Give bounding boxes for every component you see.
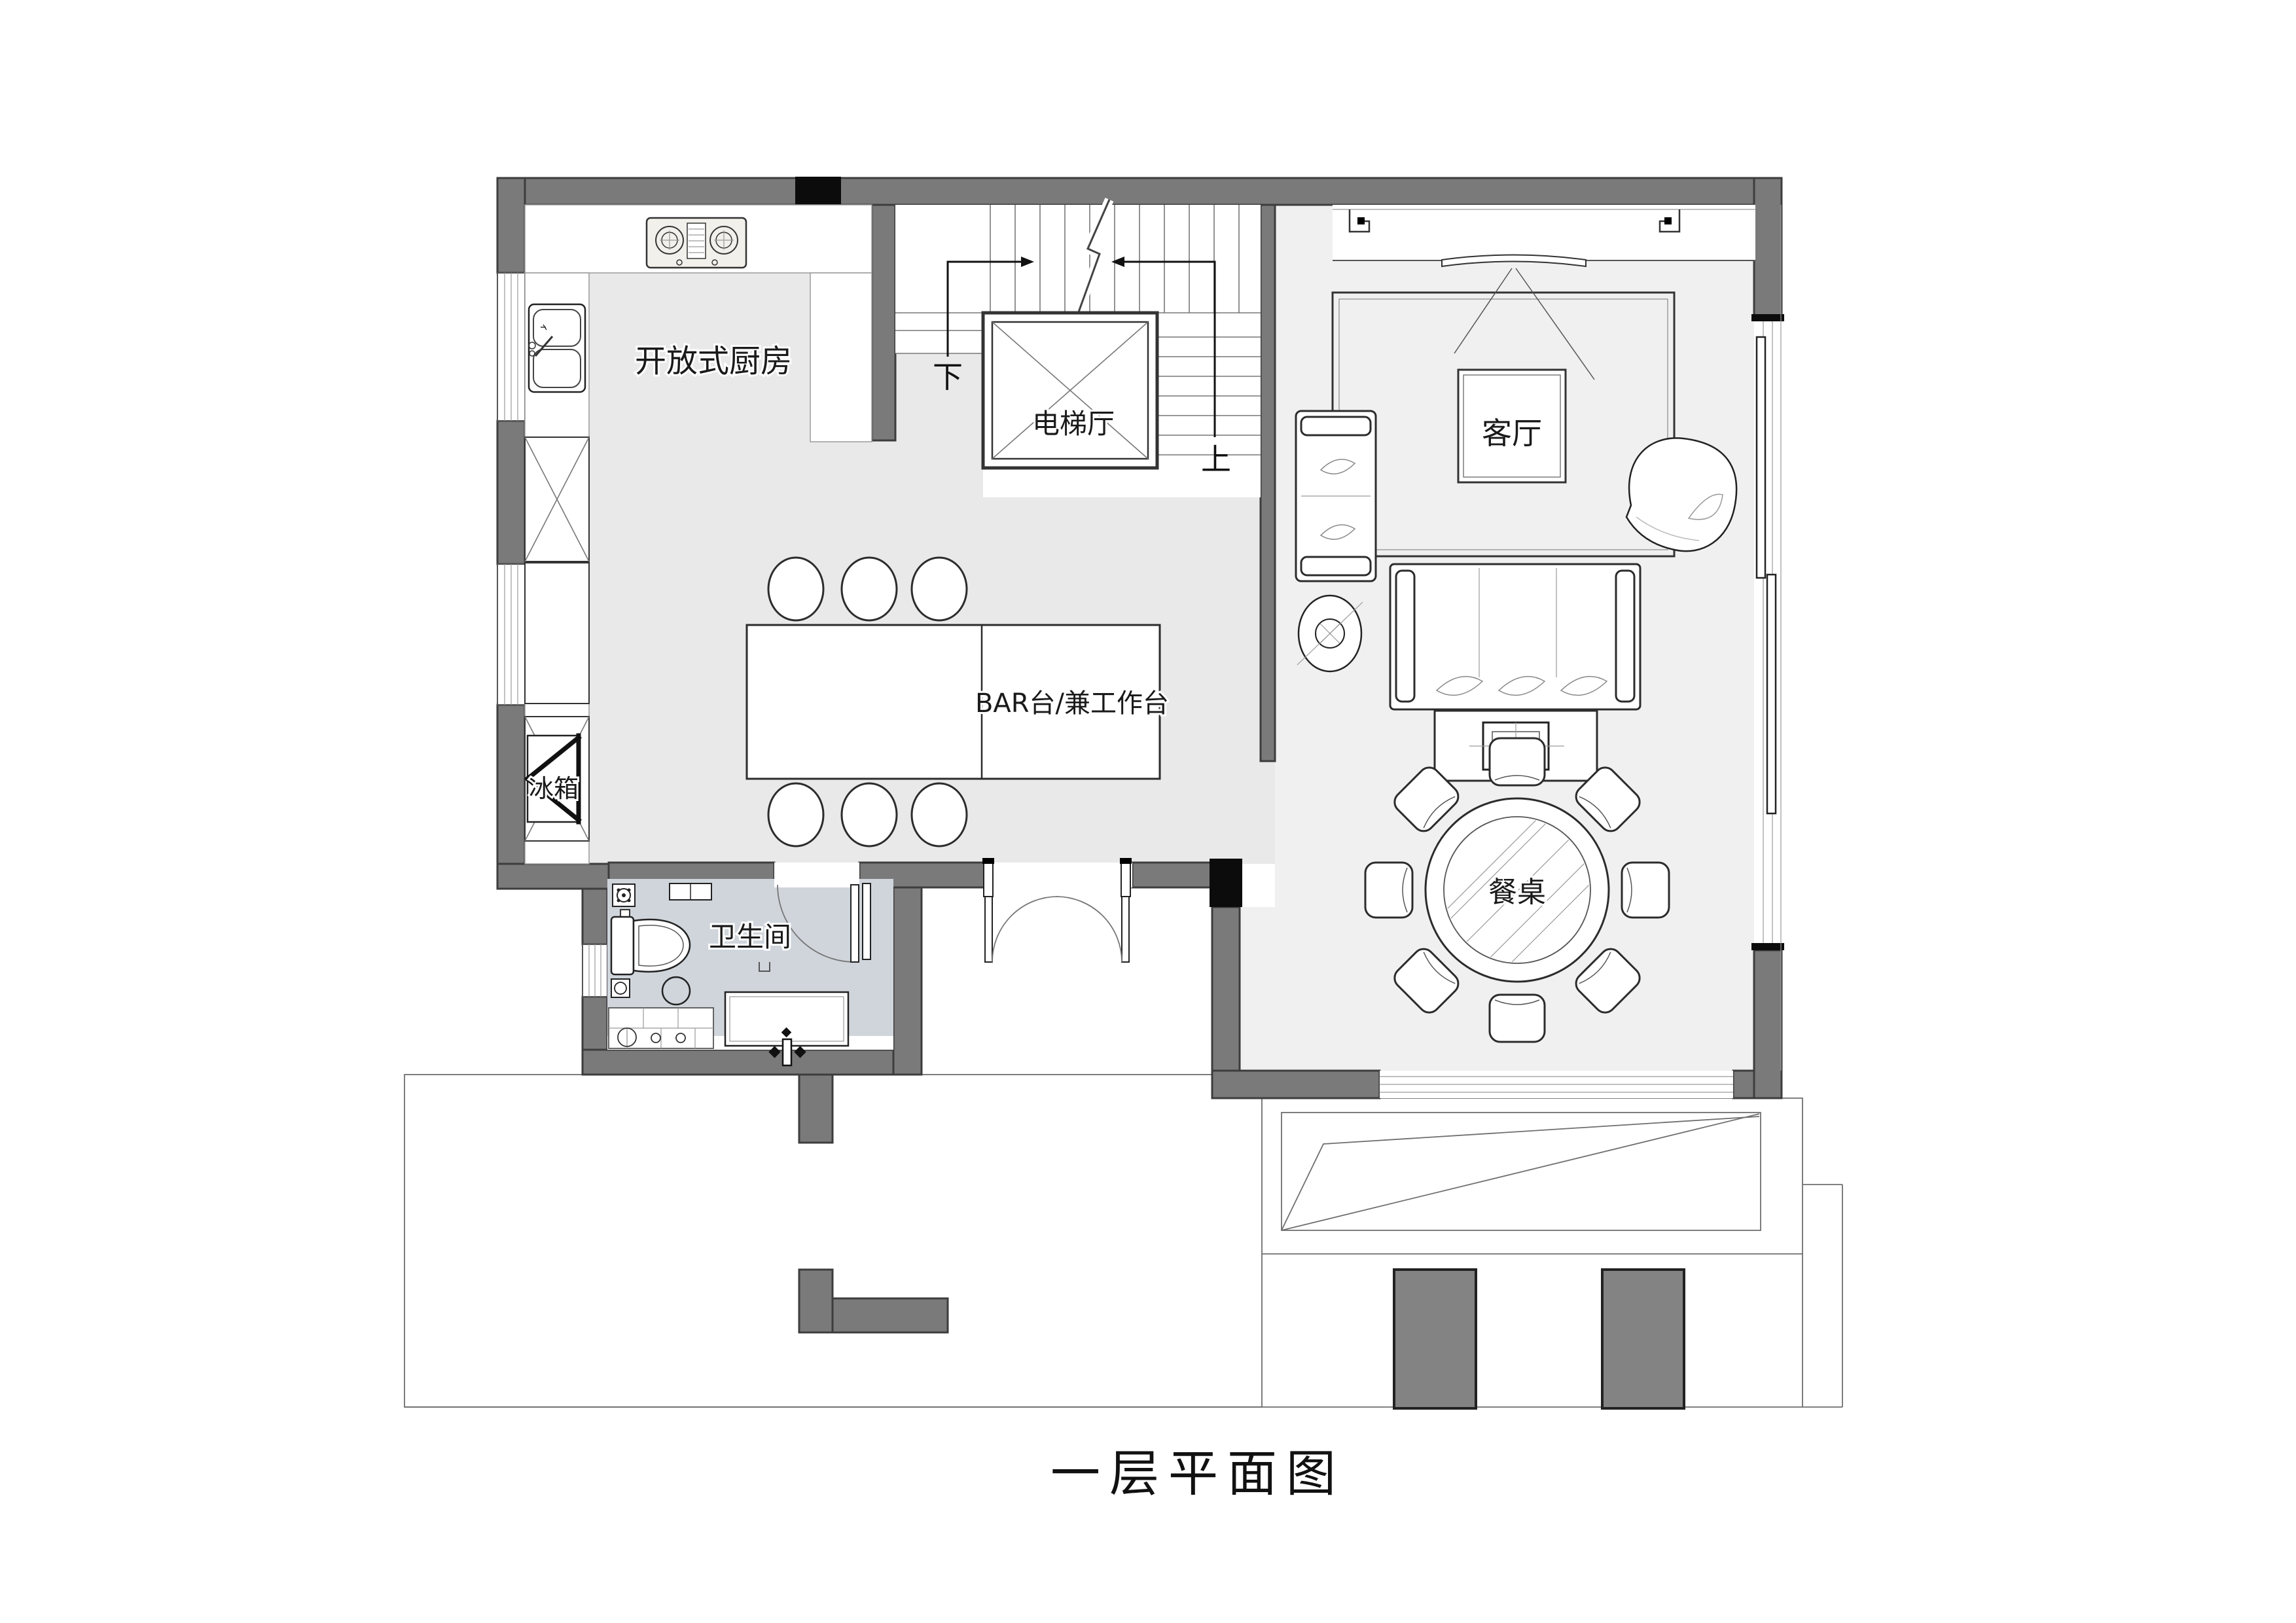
bar-label: BAR台/兼工作台 xyxy=(975,688,1169,719)
tall-cabinet xyxy=(525,563,589,704)
window-left-1 xyxy=(497,273,525,421)
bar-stool xyxy=(768,783,823,846)
bar-stool xyxy=(842,558,897,620)
elevator-shaft: 电梯厅 xyxy=(983,313,1157,468)
laundry-counter xyxy=(609,1008,713,1048)
stairs-down-label: 下 xyxy=(933,359,963,395)
sliding-window-right xyxy=(1754,205,1782,1071)
window-left-2 xyxy=(497,564,525,705)
bathroom: 卫生间 xyxy=(607,863,893,1065)
living-room-label: 客厅 xyxy=(1482,416,1542,451)
column xyxy=(1210,859,1242,907)
dining-table-label: 餐桌 xyxy=(1488,876,1546,909)
window-bathroom xyxy=(583,944,607,997)
planter xyxy=(1602,1270,1684,1408)
window-living-top xyxy=(1333,205,1755,260)
kitchen-sink xyxy=(529,304,585,392)
kitchen-label: 开放式厨房 xyxy=(635,343,792,380)
wall-stub xyxy=(833,1298,948,1332)
fridge: 冰箱 xyxy=(525,717,589,841)
bar-stool xyxy=(912,558,967,620)
bean-bag-chair xyxy=(1626,438,1736,551)
dining-chair xyxy=(1490,995,1545,1042)
terrace xyxy=(404,1075,1842,1408)
dining-chair xyxy=(1490,738,1545,785)
living-label-box: 客厅 xyxy=(1458,370,1566,482)
floor-plan: 下 上 电梯厅 xyxy=(0,0,2296,1623)
page-title: 一层平面图 xyxy=(1050,1444,1345,1503)
fridge-label: 冰箱 xyxy=(529,774,579,803)
wall-stub xyxy=(799,1270,833,1332)
floor-drain-icon xyxy=(611,979,630,997)
planter xyxy=(1394,1270,1476,1408)
dining-chair xyxy=(1622,863,1669,918)
bathroom-label: 卫生间 xyxy=(709,921,791,953)
stairs-up-label: 上 xyxy=(1201,442,1231,477)
sliding-door-panel xyxy=(863,883,870,959)
window-dining-bottom xyxy=(1380,1071,1733,1098)
sofa-two-seat xyxy=(1296,411,1376,581)
bar-stool xyxy=(768,558,823,620)
dining-area: 餐桌 xyxy=(1365,738,1669,1042)
gas-stove xyxy=(647,218,746,268)
entry-double-door xyxy=(982,858,1132,962)
sofa-three-seat xyxy=(1390,564,1640,709)
elevator-hall-label: 电梯厅 xyxy=(1032,408,1115,440)
floor-lamp xyxy=(1297,596,1363,671)
pantry-cabinet xyxy=(525,437,589,562)
bar-stool xyxy=(912,783,967,846)
terrace-ramp xyxy=(1282,1113,1761,1230)
bar-stool xyxy=(842,783,897,846)
wall-stub xyxy=(799,1075,833,1143)
wall-cabinet xyxy=(670,883,711,900)
dining-chair xyxy=(1365,863,1412,918)
exhaust-fan-icon xyxy=(613,884,635,906)
